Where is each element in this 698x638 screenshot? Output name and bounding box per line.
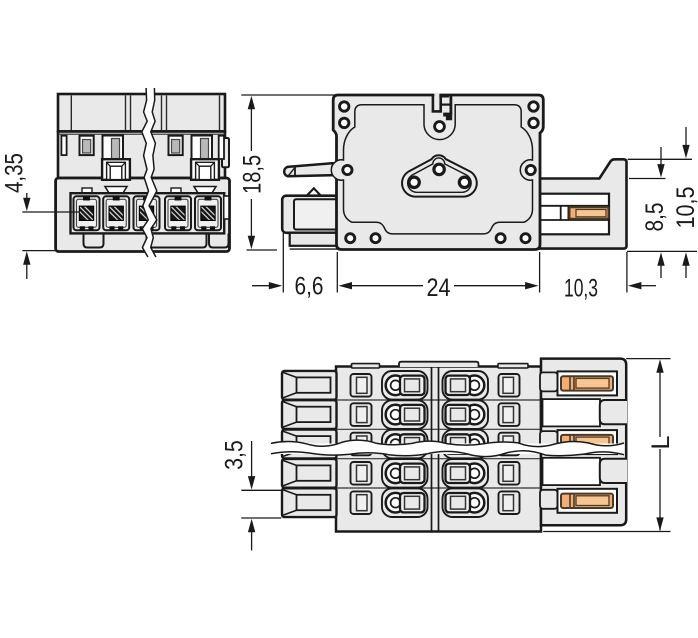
svg-text:24: 24 — [427, 274, 451, 302]
svg-text:6,6: 6,6 — [295, 273, 324, 301]
svg-text:4,35: 4,35 — [0, 153, 28, 193]
svg-text:L: L — [647, 435, 675, 449]
svg-text:3,5: 3,5 — [220, 440, 248, 470]
svg-text:10,5: 10,5 — [672, 187, 698, 229]
svg-text:18,5: 18,5 — [238, 155, 266, 194]
svg-text:8,5: 8,5 — [641, 203, 669, 232]
svg-text:10,3: 10,3 — [564, 274, 598, 302]
